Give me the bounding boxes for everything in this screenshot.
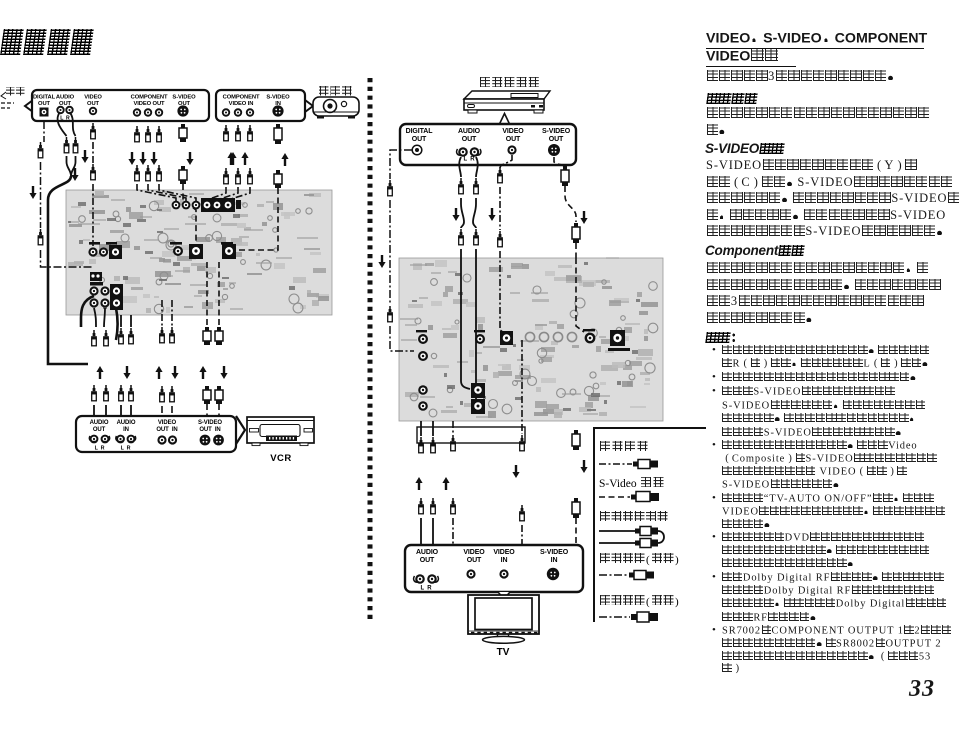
svg-text:VCR: VCR xyxy=(270,453,292,464)
svg-text:AUDIO: AUDIO xyxy=(416,549,439,556)
svg-text:L R: L R xyxy=(421,586,433,592)
svg-text:AUDIO: AUDIO xyxy=(56,95,75,101)
svg-text:(: ( xyxy=(646,596,650,608)
svg-text:VIDEO: VIDEO xyxy=(493,549,515,556)
svg-text:S-VIDEO: S-VIDEO xyxy=(172,95,196,101)
svg-text:OUT: OUT xyxy=(87,101,99,107)
svg-text:OUT: OUT xyxy=(38,101,50,107)
svg-text:OUT IN: OUT IN xyxy=(156,427,177,433)
svg-text:OUT: OUT xyxy=(549,136,564,143)
svg-text:L R: L R xyxy=(60,116,70,122)
svg-text:COMPONENT: COMPONENT xyxy=(223,95,260,101)
svg-text:OUT: OUT xyxy=(467,557,482,564)
svg-text:AUDIO: AUDIO xyxy=(90,420,109,426)
svg-text:S-VIDEO: S-VIDEO xyxy=(540,549,569,556)
svg-text:IN: IN xyxy=(123,427,129,433)
svg-text:): ) xyxy=(675,596,679,608)
svg-text:VIDEO IN: VIDEO IN xyxy=(229,101,254,107)
svg-text:VIDEO: VIDEO xyxy=(502,128,524,135)
svg-text:TV: TV xyxy=(497,647,510,658)
svg-text:L R: L R xyxy=(121,446,131,452)
svg-text:AUDIO: AUDIO xyxy=(117,420,136,426)
svg-text:OUT IN: OUT IN xyxy=(199,427,220,433)
svg-text:COMPONENT: COMPONENT xyxy=(131,95,168,101)
svg-text:L R: L R xyxy=(95,446,105,452)
svg-text:OUT: OUT xyxy=(93,427,106,433)
svg-text:(: ( xyxy=(646,554,650,566)
svg-text:VIDEO: VIDEO xyxy=(84,95,102,101)
svg-text:VIDEO OUT: VIDEO OUT xyxy=(134,101,166,107)
svg-text:DIGITAL: DIGITAL xyxy=(406,128,434,135)
svg-text:OUT: OUT xyxy=(506,136,521,143)
svg-text:AUDIO: AUDIO xyxy=(458,128,481,135)
svg-text:S-VIDEO: S-VIDEO xyxy=(198,420,222,426)
svg-text:IN: IN xyxy=(501,557,508,564)
svg-text:VIDEO: VIDEO xyxy=(158,420,177,426)
svg-text:S-Video: S-Video xyxy=(599,478,637,490)
svg-text:S-VIDEO: S-VIDEO xyxy=(542,128,571,135)
svg-text:L R: L R xyxy=(464,157,476,163)
svg-text:): ) xyxy=(675,554,679,566)
svg-text:OUT: OUT xyxy=(420,557,435,564)
svg-text:VIDEO: VIDEO xyxy=(463,549,485,556)
svg-text:IN: IN xyxy=(551,557,558,564)
svg-text:DIGITAL: DIGITAL xyxy=(33,95,56,101)
svg-text:S-VIDEO: S-VIDEO xyxy=(266,95,290,101)
svg-text:OUT: OUT xyxy=(412,136,427,143)
svg-text:OUT: OUT xyxy=(462,136,477,143)
